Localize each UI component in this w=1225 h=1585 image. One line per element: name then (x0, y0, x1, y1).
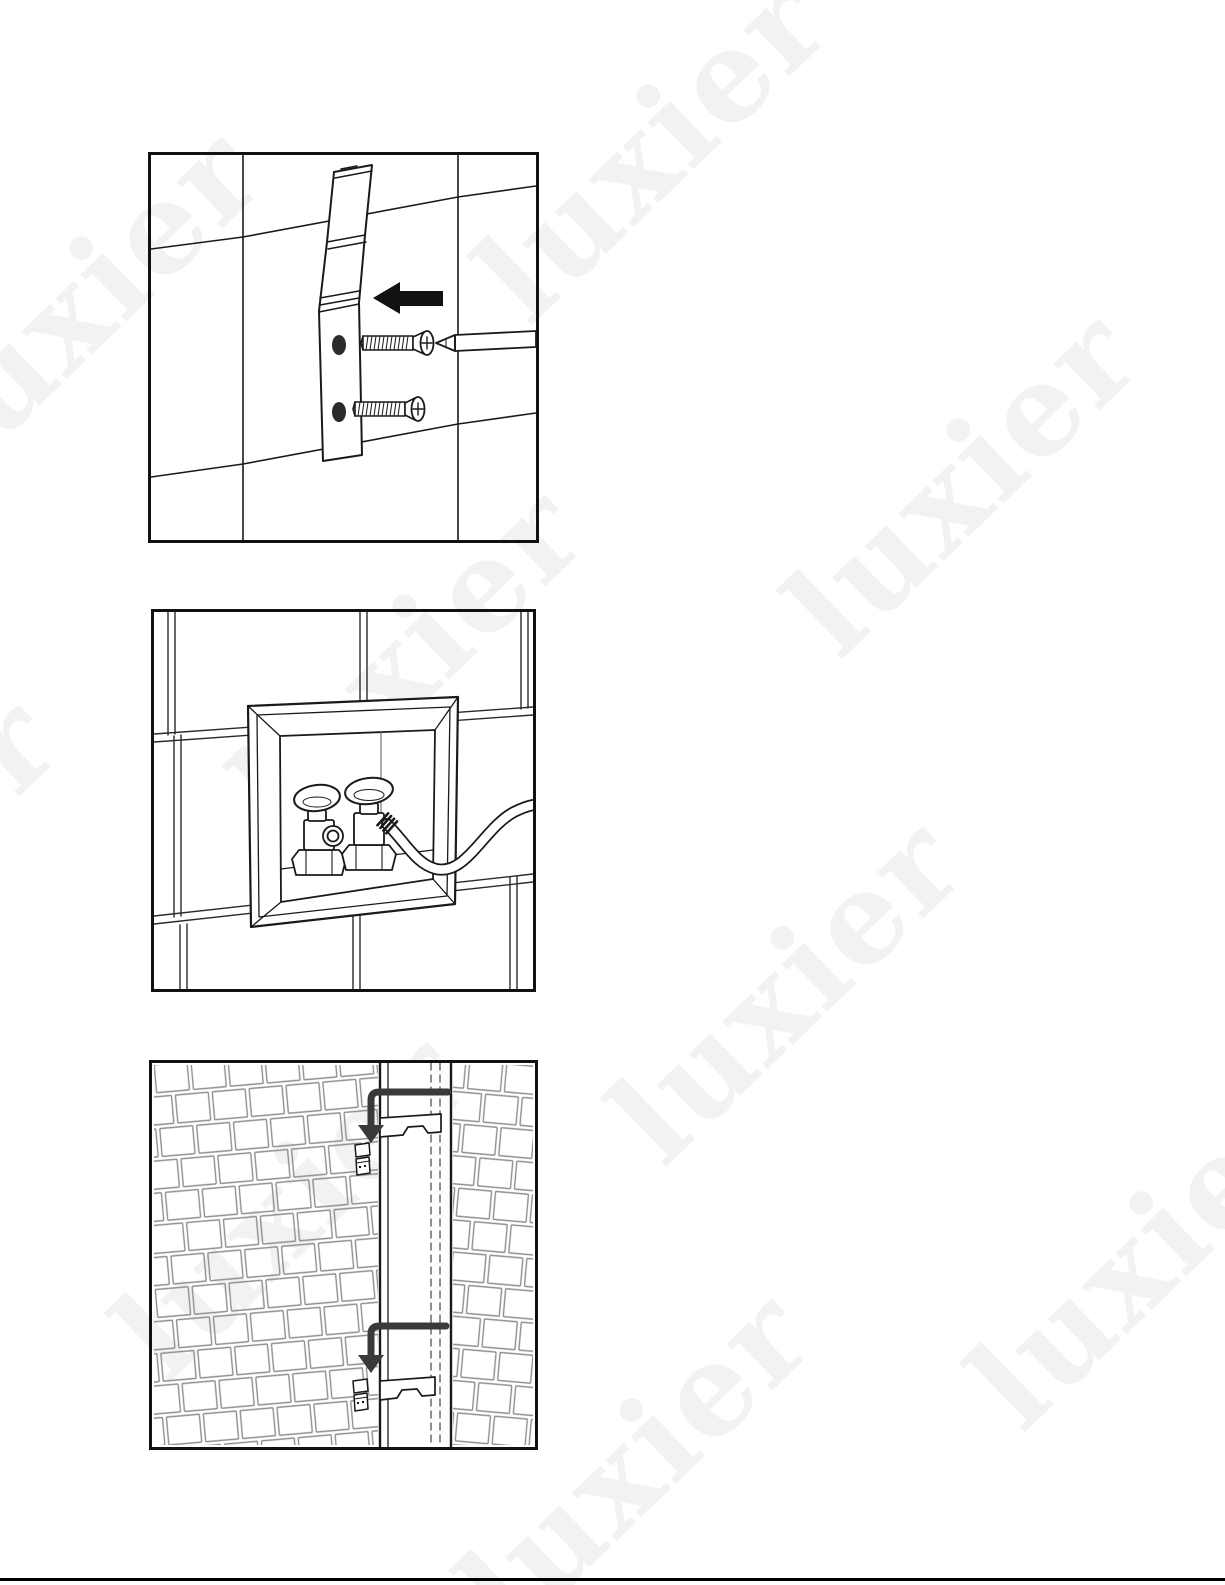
manual-page: luxierluxierluxierluxierluxierluxierluxi… (0, 0, 1225, 1585)
clip-bottom (353, 1379, 368, 1411)
bracket-hole (332, 335, 346, 355)
clip-top (355, 1143, 370, 1175)
watermark-text: luxier (0, 674, 79, 1061)
brick-tile-wall (154, 1065, 533, 1445)
watermark-text: luxier (589, 796, 984, 1183)
footer-rule (0, 1578, 1225, 1581)
watermark-text: luxier (765, 288, 1160, 675)
recessed-valve-box (248, 697, 458, 927)
screw-bottom (353, 397, 425, 421)
watermark-text: luxier (948, 1061, 1225, 1448)
phillips-screwdriver (436, 331, 536, 351)
screw-top (361, 331, 434, 355)
figure-valve-box (151, 609, 536, 992)
direction-arrow-icon (373, 282, 443, 314)
figure-mount-bracket (148, 152, 539, 543)
figure-rail-clips (149, 1060, 538, 1450)
bracket-hole (332, 402, 346, 422)
